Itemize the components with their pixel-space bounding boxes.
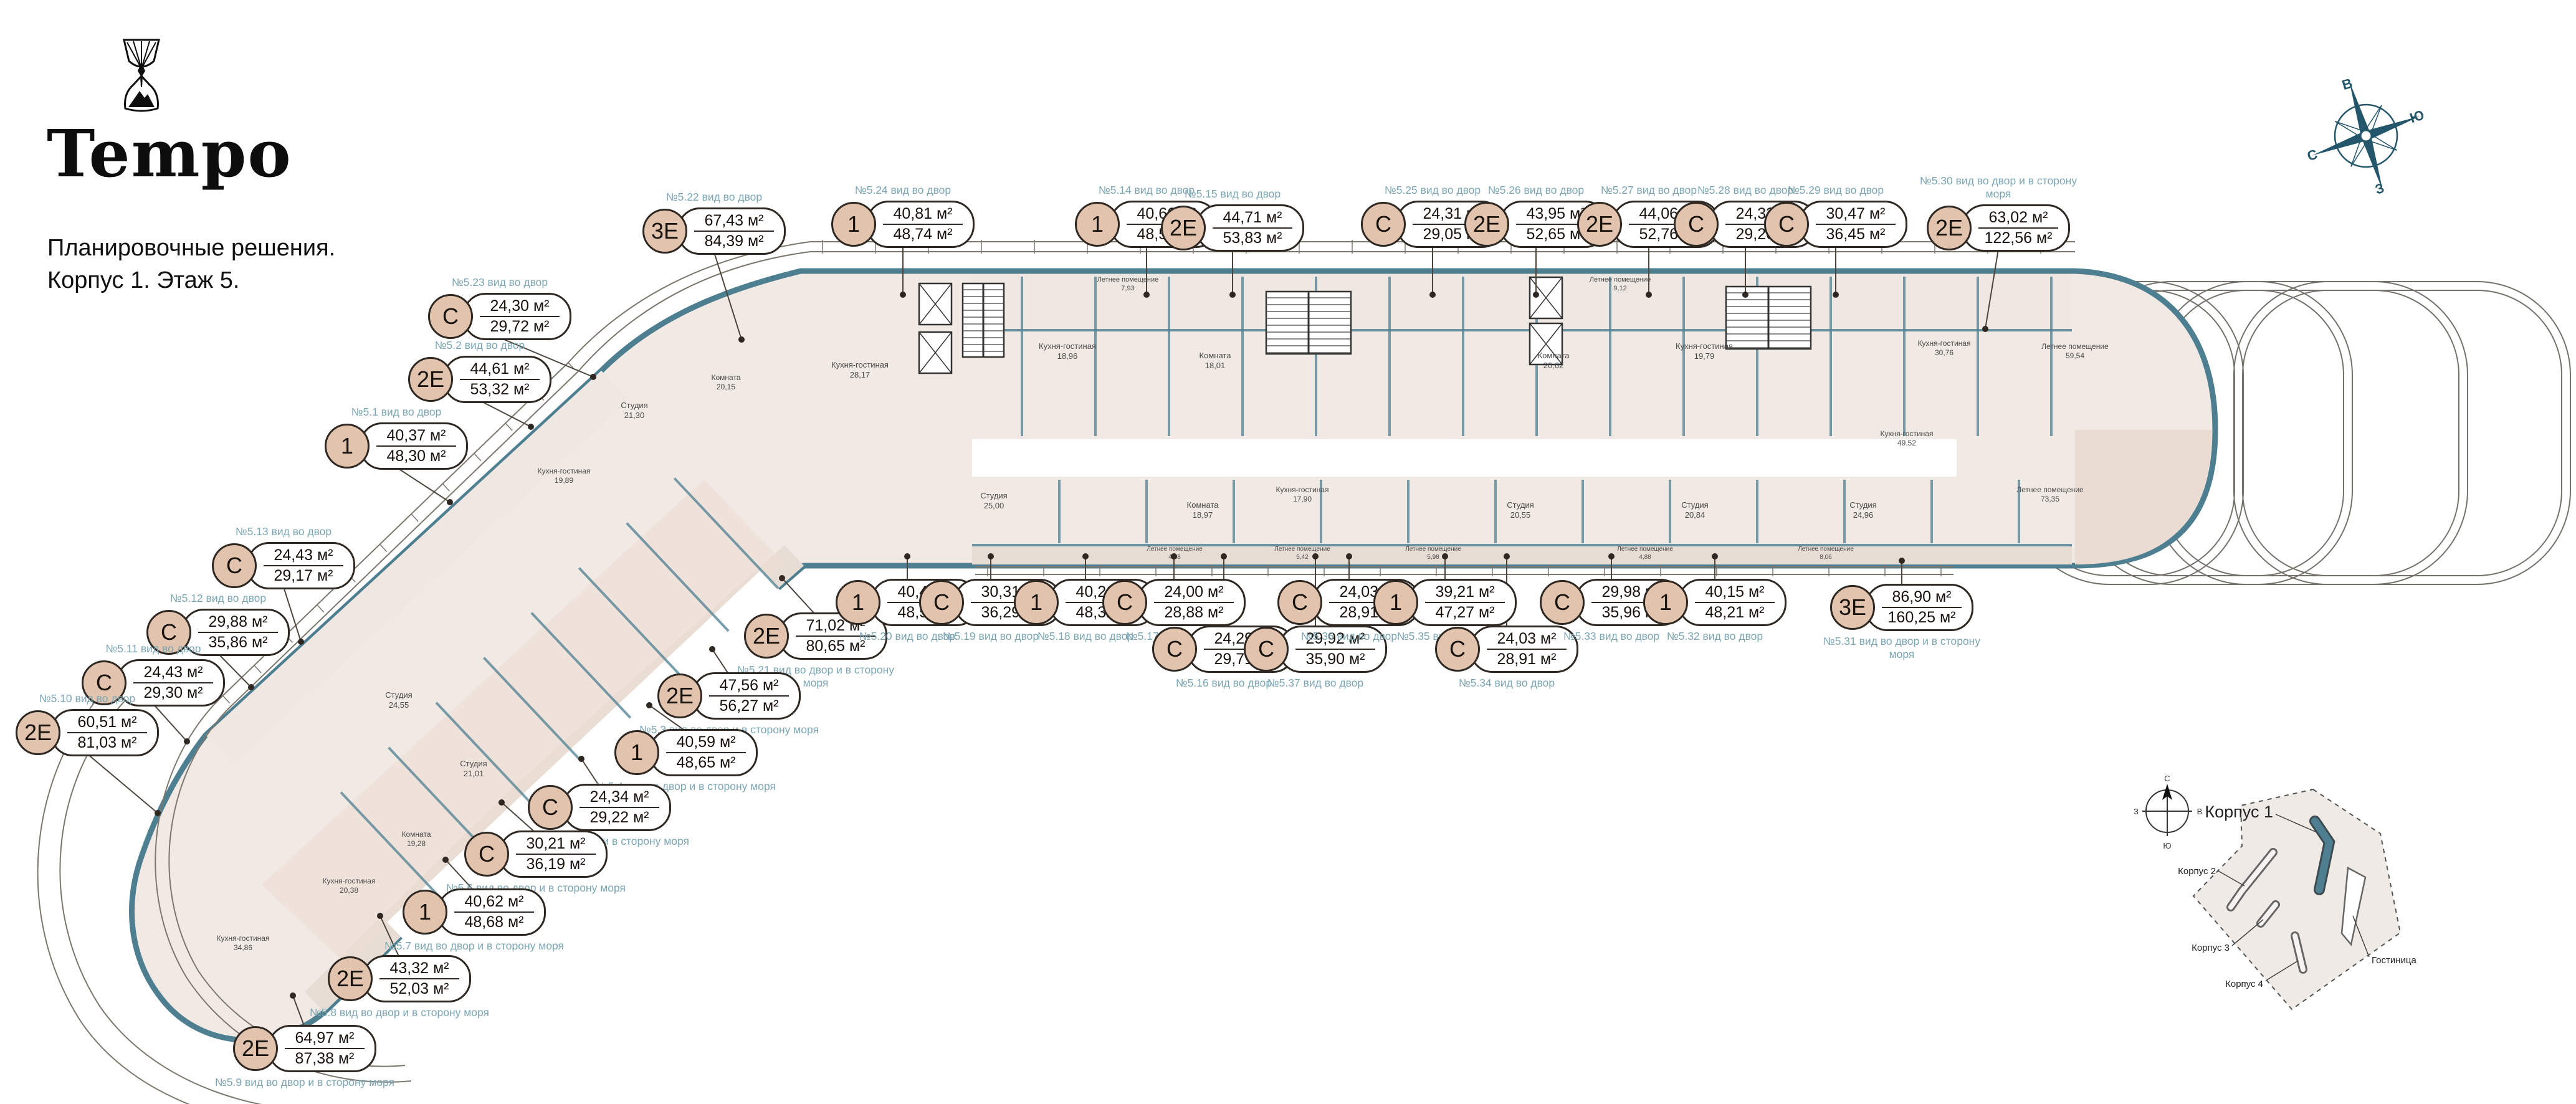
unit-type-badge: 1: [403, 890, 447, 935]
unit-area-living: 40,15 м²: [1695, 583, 1775, 603]
unit-type-badge: С: [1102, 580, 1147, 625]
leader-dot: [578, 756, 584, 762]
unit-area-living: 43,32 м²: [379, 959, 459, 979]
unit-areas: 60,51 м²81,03 м²: [50, 709, 159, 756]
room-label: Студия21,30: [621, 401, 647, 420]
unit-type-badge: С: [919, 580, 964, 625]
leader-dot: [590, 374, 596, 380]
leader-dot: [1982, 326, 1988, 332]
unit-area-living: 40,62 м²: [454, 892, 534, 913]
unit-number-label: №5.29 вид во двор: [1745, 184, 1926, 197]
leader-dot: [290, 992, 296, 999]
unit-type-badge: 1: [1075, 202, 1120, 247]
leader-dot: [1082, 553, 1089, 559]
leader-dot: [1346, 553, 1352, 559]
unit-callout: №5.1 вид во двор140,37 м²48,30 м²: [325, 422, 468, 470]
unit-callout: №5.29 вид во дворС30,47 м²36,45 м²: [1764, 201, 1907, 248]
leader-dot: [709, 646, 715, 652]
unit-type-badge: 2Е: [744, 614, 789, 659]
unit-type-badge: 2Е: [1464, 202, 1509, 247]
unit-callout-bubble[interactable]: 2Е64,97 м²87,38 м²: [233, 1025, 376, 1072]
unit-number-label: №5.2 вид во двор: [389, 339, 570, 352]
leader-dot: [447, 499, 453, 505]
unit-type-badge: 3Е: [1830, 585, 1875, 630]
unit-callout: №5.3 вид во двор и в сторону моря2Е47,56…: [657, 672, 801, 720]
summer-strip-bottom: [972, 545, 2072, 564]
minimap-label-hotel: Гостиница: [2372, 955, 2416, 966]
unit-number-label: №5.15 вид во двор: [1142, 188, 1323, 201]
unit-callout: №5.5 вид во двор и в сторону моряС24,34 …: [528, 784, 671, 831]
unit-type-badge: С: [1152, 627, 1197, 672]
leader-dot: [1143, 292, 1150, 298]
unit-area-total: 84,39 м²: [694, 232, 774, 251]
unit-callout-bubble[interactable]: 2Е44,61 м²53,32 м²: [408, 356, 551, 403]
unit-callout-bubble[interactable]: С24,00 м²28,88 м²: [1102, 579, 1246, 626]
unit-callout-bubble[interactable]: 140,15 м²48,21 м²: [1643, 579, 1787, 626]
room-label: Студия21,01: [460, 759, 487, 778]
unit-area-living: 29,88 м²: [198, 612, 278, 633]
unit-number-label: №5.13 вид во двор: [193, 525, 374, 538]
unit-callout-bubble[interactable]: 140,59 м²48,65 м²: [614, 729, 758, 776]
unit-type-badge: 3Е: [642, 209, 687, 254]
unit-areas: 44,61 м²53,32 м²: [443, 356, 551, 403]
unit-number-label: №5.10 вид во двор: [0, 692, 178, 705]
leader-dot: [1442, 553, 1448, 559]
unit-type-badge: 1: [831, 202, 876, 247]
terrace-fill: [2075, 430, 2212, 564]
leader-dot: [904, 553, 910, 559]
unit-areas: 24,43 м²29,17 м²: [247, 542, 355, 589]
page-title-line1: Планировочные решения.: [47, 232, 335, 264]
unit-type-badge: С: [1361, 202, 1406, 247]
unit-area-total: 122,56 м²: [1978, 229, 2058, 248]
elevator-core: [1530, 277, 1562, 318]
unit-areas: 40,81 м²48,74 м²: [866, 201, 975, 248]
room-label: Студия24,96: [1849, 500, 1876, 520]
unit-number-label: №5.22 вид во двор: [624, 191, 804, 204]
balcony-fin: [2234, 282, 2570, 584]
unit-type-badge: 2Е: [328, 956, 373, 1001]
unit-areas: 24,34 м²29,22 м²: [563, 784, 671, 831]
unit-areas: 47,56 м²56,27 м²: [692, 672, 801, 720]
unit-type-badge: 2Е: [1577, 202, 1622, 247]
leader-dot: [900, 292, 906, 298]
unit-type-badge: 2Е: [1927, 206, 1972, 250]
unit-type-badge: С: [464, 832, 509, 877]
unit-callout-bubble[interactable]: 2Е44,71 м²53,83 м²: [1161, 204, 1304, 252]
unit-area-total: 53,83 м²: [1213, 229, 1292, 248]
unit-callout-bubble[interactable]: 3Е67,43 м²84,39 м²: [642, 207, 786, 255]
unit-area-living: 64,97 м²: [285, 1029, 365, 1049]
leader-dot: [1712, 553, 1718, 559]
unit-areas: 39,21 м²47,27 м²: [1408, 579, 1517, 626]
floor-plan-page: Летнее помещение7,93Летнее помещение9,12…: [0, 0, 2576, 1104]
unit-areas: 40,59 м²48,65 м²: [649, 729, 758, 776]
unit-area-total: 29,17 м²: [264, 566, 343, 586]
unit-type-badge: С: [428, 294, 473, 339]
stair-core: [963, 283, 1004, 357]
unit-number-label: №5.8 вид во двор и в сторону моря: [309, 1006, 490, 1019]
unit-callout: №5.22 вид во двор3Е67,43 м²84,39 м²: [642, 207, 786, 255]
unit-number-label: №5.37 вид во двор: [1225, 677, 1406, 690]
unit-number-label: №5.30 вид во двор и в сторону моря: [1908, 174, 2089, 201]
leader-line: [782, 578, 816, 615]
leader-dot: [1312, 553, 1319, 559]
unit-callout: №5.24 вид во двор140,81 м²48,74 м²: [831, 201, 975, 248]
unit-callout: №5.8 вид во двор и в сторону моря2Е43,32…: [328, 955, 471, 1002]
unit-area-total: 56,27 м²: [709, 697, 789, 716]
room-label: Студия20,55: [1507, 500, 1534, 520]
unit-area-total: 47,27 м²: [1425, 603, 1505, 622]
unit-callout: №5.15 вид во двор2Е44,71 м²53,83 м²: [1161, 204, 1304, 252]
unit-callout: №5.6 вид во двор и в сторону моряС30,21 …: [464, 830, 608, 878]
leader-dot: [1229, 292, 1236, 298]
unit-area-living: 24,30 м²: [480, 297, 560, 317]
minimap-compass-e: В: [2197, 807, 2203, 816]
unit-number-label: №5.11 вид во двор: [63, 642, 244, 655]
site-minimap: Корпус 1 Корпус 2 Корпус 3 Корпус 4 Гост…: [2134, 774, 2416, 1009]
unit-area-total: 48,65 м²: [666, 753, 746, 773]
unit-callout-bubble[interactable]: С24,34 м²29,22 м²: [528, 784, 671, 831]
leader-dot: [298, 639, 304, 645]
unit-type-badge: 2Е: [16, 710, 60, 755]
unit-area-living: 44,61 м²: [460, 359, 540, 380]
unit-area-living: 24,43 м²: [133, 663, 213, 683]
unit-area-living: 47,56 м²: [709, 676, 789, 697]
unit-areas: 24,30 м²29,72 м²: [463, 293, 571, 340]
unit-type-badge: С: [1674, 202, 1719, 247]
leader-dot: [1533, 292, 1539, 298]
minimap-label-b3: Корпус 3: [2192, 943, 2230, 953]
unit-callout: №5.9 вид во двор и в сторону моря2Е64,97…: [233, 1025, 376, 1072]
brand-logo: Tempo: [47, 115, 292, 192]
unit-areas: 86,90 м²160,25 м²: [1865, 584, 1973, 631]
unit-callout: №5.10 вид во двор2Е60,51 м²81,03 м²: [16, 709, 159, 756]
unit-area-living: 30,47 м²: [1816, 204, 1896, 225]
minimap-compass-w: З: [2134, 807, 2139, 816]
leader-dot: [248, 684, 254, 690]
unit-number-label: №5.24 вид во двор: [813, 184, 993, 197]
unit-area-living: 24,34 м²: [580, 788, 659, 808]
minimap-label-b1: Корпус 1: [2205, 802, 2273, 821]
unit-callout: №5.13 вид во дворС24,43 м²29,17 м²: [212, 542, 355, 589]
unit-area-total: 29,22 м²: [580, 808, 659, 827]
unit-callout: №5.31 вид во двор и в сторону моря3Е86,9…: [1830, 584, 1973, 631]
unit-type-badge: 1: [325, 424, 370, 469]
unit-areas: 44,71 м²53,83 м²: [1196, 204, 1304, 252]
unit-type-badge: 1: [1014, 580, 1059, 625]
leader-dot: [442, 857, 449, 863]
unit-area-total: 48,74 м²: [883, 225, 963, 244]
unit-area-total: 48,30 м²: [376, 447, 456, 466]
compass-s: Ю: [2408, 107, 2426, 126]
room-label: Студия20,84: [1681, 500, 1708, 520]
unit-area-total: 160,25 м²: [1882, 608, 1962, 627]
unit-type-badge: С: [1764, 202, 1809, 247]
unit-callout: №5.7 вид во двор и в сторону моря140,62 …: [403, 888, 546, 936]
unit-number-label: №5.34 вид во двор: [1416, 677, 1597, 690]
unit-callout: №5.4 вид во двор и в сторону моря140,59 …: [614, 729, 758, 776]
page-title: Планировочные решения. Корпус 1. Этаж 5.: [47, 232, 335, 297]
floor-plan: Летнее помещение7,93Летнее помещение9,12…: [0, 0, 2576, 1104]
minimap-compass-n: С: [2164, 774, 2170, 783]
unit-callout-bubble[interactable]: 2Е43,32 м²52,03 м²: [328, 955, 471, 1002]
unit-type-badge: С: [1277, 580, 1322, 625]
unit-area-living: 40,59 м²: [666, 733, 746, 753]
unit-type-badge: С: [212, 543, 257, 588]
room-label: Студия25,00: [980, 491, 1007, 510]
unit-number-label: №5.12 вид во двор: [128, 592, 308, 605]
leader-dot: [499, 799, 505, 806]
corridor: [972, 439, 1957, 477]
unit-type-badge: 1: [1643, 580, 1688, 625]
leader-line: [87, 754, 158, 813]
unit-callout: №5.23 вид во дворС24,30 м²29,72 м²: [428, 293, 571, 340]
unit-area-living: 63,02 м²: [1978, 208, 2058, 229]
unit-type-badge: 2Е: [1161, 206, 1206, 250]
unit-area-total: 28,88 м²: [1154, 603, 1234, 622]
unit-area-total: 52,03 м²: [379, 979, 459, 999]
unit-callout-bubble[interactable]: 2Е63,02 м²122,56 м²: [1927, 204, 2070, 252]
leader-dot: [738, 336, 745, 343]
unit-area-total: 48,68 м²: [454, 913, 534, 932]
minimap-compass-s: Ю: [2163, 841, 2171, 850]
leader-dot: [528, 424, 534, 430]
unit-area-living: 30,21 м²: [516, 834, 596, 855]
elevator-core: [919, 283, 952, 325]
compass-rose: В Ю С З: [2306, 75, 2426, 197]
unit-areas: 40,62 м²48,68 м²: [437, 888, 546, 936]
unit-callout: №5.2 вид во двор2Е44,61 м²53,32 м²: [408, 356, 551, 403]
unit-areas: 40,37 м²48,30 м²: [360, 422, 468, 470]
unit-areas: 67,43 м²84,39 м²: [677, 207, 786, 255]
leader-dot: [779, 575, 785, 581]
unit-area-total: 53,32 м²: [460, 380, 540, 399]
leader-dot: [1429, 292, 1436, 298]
unit-number-label: №5.1 вид во двор: [306, 406, 487, 419]
leader-dot: [1608, 553, 1615, 559]
minimap-label-b4: Корпус 4: [2225, 979, 2263, 989]
unit-area-total: 36,19 м²: [516, 855, 596, 874]
unit-areas: 64,97 м²87,38 м²: [268, 1025, 376, 1072]
compass-e: В: [2340, 75, 2355, 93]
leader-dot: [1833, 292, 1839, 298]
leader-dot: [377, 913, 383, 919]
unit-area-living: 39,21 м²: [1425, 583, 1505, 603]
leader-dot: [1171, 553, 1177, 559]
unit-type-badge: 1: [1373, 580, 1418, 625]
unit-type-badge: 2Е: [657, 673, 702, 718]
unit-areas: 63,02 м²122,56 м²: [1962, 204, 2070, 252]
unit-callout-bubble[interactable]: С24,30 м²29,72 м²: [428, 293, 571, 340]
hourglass-icon: [122, 39, 161, 112]
unit-type-badge: 1: [614, 730, 659, 775]
leader-dot: [1646, 292, 1652, 298]
unit-number-label: №5.32 вид во двор: [1624, 630, 1805, 643]
elevator-core: [919, 332, 952, 373]
unit-type-badge: 1: [836, 580, 880, 625]
unit-number-label: №5.23 вид во двор: [409, 276, 590, 289]
unit-type-badge: 2Е: [233, 1026, 278, 1071]
unit-areas: 40,15 м²48,21 м²: [1678, 579, 1787, 626]
balcony-fin: [2243, 290, 2562, 576]
unit-callout: №5.17 вид во дворС24,00 м²28,88 м²: [1102, 579, 1246, 626]
unit-area-total: 28,91 м²: [1487, 650, 1567, 669]
unit-callout-bubble[interactable]: 140,62 м²48,68 м²: [403, 888, 546, 936]
unit-area-living: 40,37 м²: [376, 426, 456, 447]
stair-core: [1266, 292, 1351, 354]
leader-dot: [1504, 553, 1510, 559]
unit-area-total: 29,72 м²: [480, 317, 560, 336]
minimap-compass: С Ю З В: [2134, 774, 2202, 850]
unit-areas: 24,00 м²28,88 м²: [1137, 579, 1246, 626]
unit-area-total: 36,45 м²: [1816, 225, 1896, 244]
unit-area-living: 24,43 м²: [264, 546, 343, 566]
unit-type-badge: С: [1540, 580, 1585, 625]
unit-callout-bubble[interactable]: С30,47 м²36,45 м²: [1764, 201, 1907, 248]
unit-callout: №5.30 вид во двор и в сторону моря2Е63,0…: [1927, 204, 2070, 252]
unit-callout: №5.35 вид во двор139,21 м²47,27 м²: [1373, 579, 1517, 626]
unit-area-living: 24,00 м²: [1154, 583, 1234, 603]
compass-n: С: [2306, 146, 2320, 164]
unit-area-living: 67,43 м²: [694, 211, 774, 232]
unit-number-label: №5.7 вид во двор и в сторону моря: [384, 940, 565, 953]
unit-area-living: 60,51 м²: [67, 713, 147, 733]
unit-area-living: 40,81 м²: [883, 204, 963, 225]
leader-dot: [988, 553, 994, 559]
unit-callout-bubble[interactable]: С24,43 м²29,17 м²: [212, 542, 355, 589]
unit-areas: 30,47 м²36,45 м²: [1799, 201, 1907, 248]
unit-type-badge: 2Е: [408, 357, 453, 402]
unit-areas: 30,21 м²36,19 м²: [499, 830, 608, 878]
unit-callout-bubble[interactable]: 140,37 м²48,30 м²: [325, 422, 468, 470]
unit-callout: №5.32 вид во двор140,15 м²48,21 м²: [1643, 579, 1787, 626]
unit-callout-bubble[interactable]: С30,21 м²36,19 м²: [464, 830, 608, 878]
leader-dot: [646, 702, 652, 708]
room-label: Студия24,55: [385, 690, 412, 710]
unit-area-total: 87,38 м²: [285, 1049, 365, 1068]
unit-number-label: №5.31 вид во двор и в сторону моря: [1811, 635, 1992, 661]
minimap-label-b2: Корпус 2: [2178, 866, 2216, 877]
unit-area-living: 44,71 м²: [1213, 208, 1292, 229]
unit-callout-bubble[interactable]: 3Е86,90 м²160,25 м²: [1830, 584, 1973, 631]
unit-number-label: №5.9 вид во двор и в сторону моря: [214, 1076, 395, 1089]
unit-area-total: 48,21 м²: [1695, 603, 1775, 622]
unit-callout-bubble[interactable]: 2Е47,56 м²56,27 м²: [657, 672, 801, 720]
unit-callout-bubble[interactable]: 139,21 м²47,27 м²: [1373, 579, 1517, 626]
unit-area-total: 81,03 м²: [67, 733, 147, 753]
page-title-line2: Корпус 1. Этаж 5.: [47, 264, 335, 297]
site-boundary: [2193, 789, 2400, 1009]
unit-areas: 43,32 м²52,03 м²: [363, 955, 471, 1002]
compass-w: З: [2373, 180, 2387, 197]
leader-dot: [1221, 553, 1227, 559]
unit-type-badge: С: [1435, 627, 1480, 672]
leader-dot: [184, 738, 190, 745]
unit-area-total: 35,90 м²: [1295, 650, 1375, 669]
unit-callout-bubble[interactable]: 2Е60,51 м²81,03 м²: [16, 709, 159, 756]
leader-dot: [155, 810, 161, 816]
unit-callout-bubble[interactable]: 140,81 м²48,74 м²: [831, 201, 975, 248]
stair-core: [1726, 287, 1811, 349]
leader-dot: [1899, 558, 1905, 564]
unit-type-badge: С: [528, 785, 573, 830]
unit-area-living: 86,90 м²: [1882, 588, 1962, 608]
leader-dot: [1742, 292, 1748, 298]
